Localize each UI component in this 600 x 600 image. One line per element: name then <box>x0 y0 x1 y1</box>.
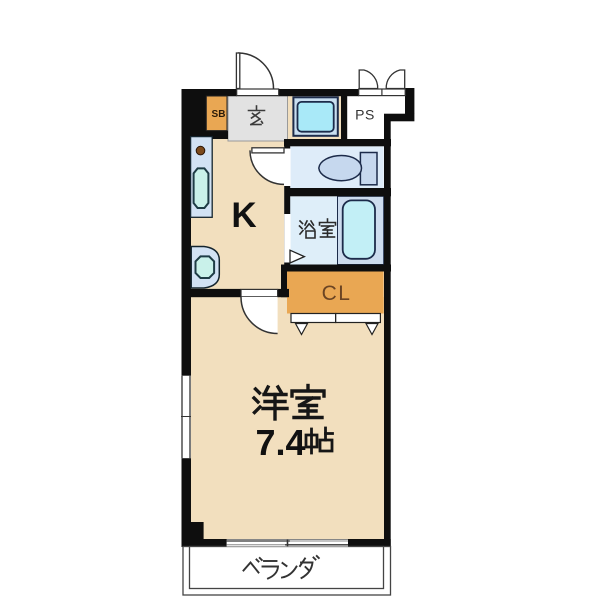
svg-text:K: K <box>231 196 256 235</box>
svg-text:PS: PS <box>355 107 375 123</box>
svg-text:SB: SB <box>212 109 226 120</box>
svg-text:7.4: 7.4 <box>255 422 305 463</box>
svg-text:CL: CL <box>322 282 352 305</box>
